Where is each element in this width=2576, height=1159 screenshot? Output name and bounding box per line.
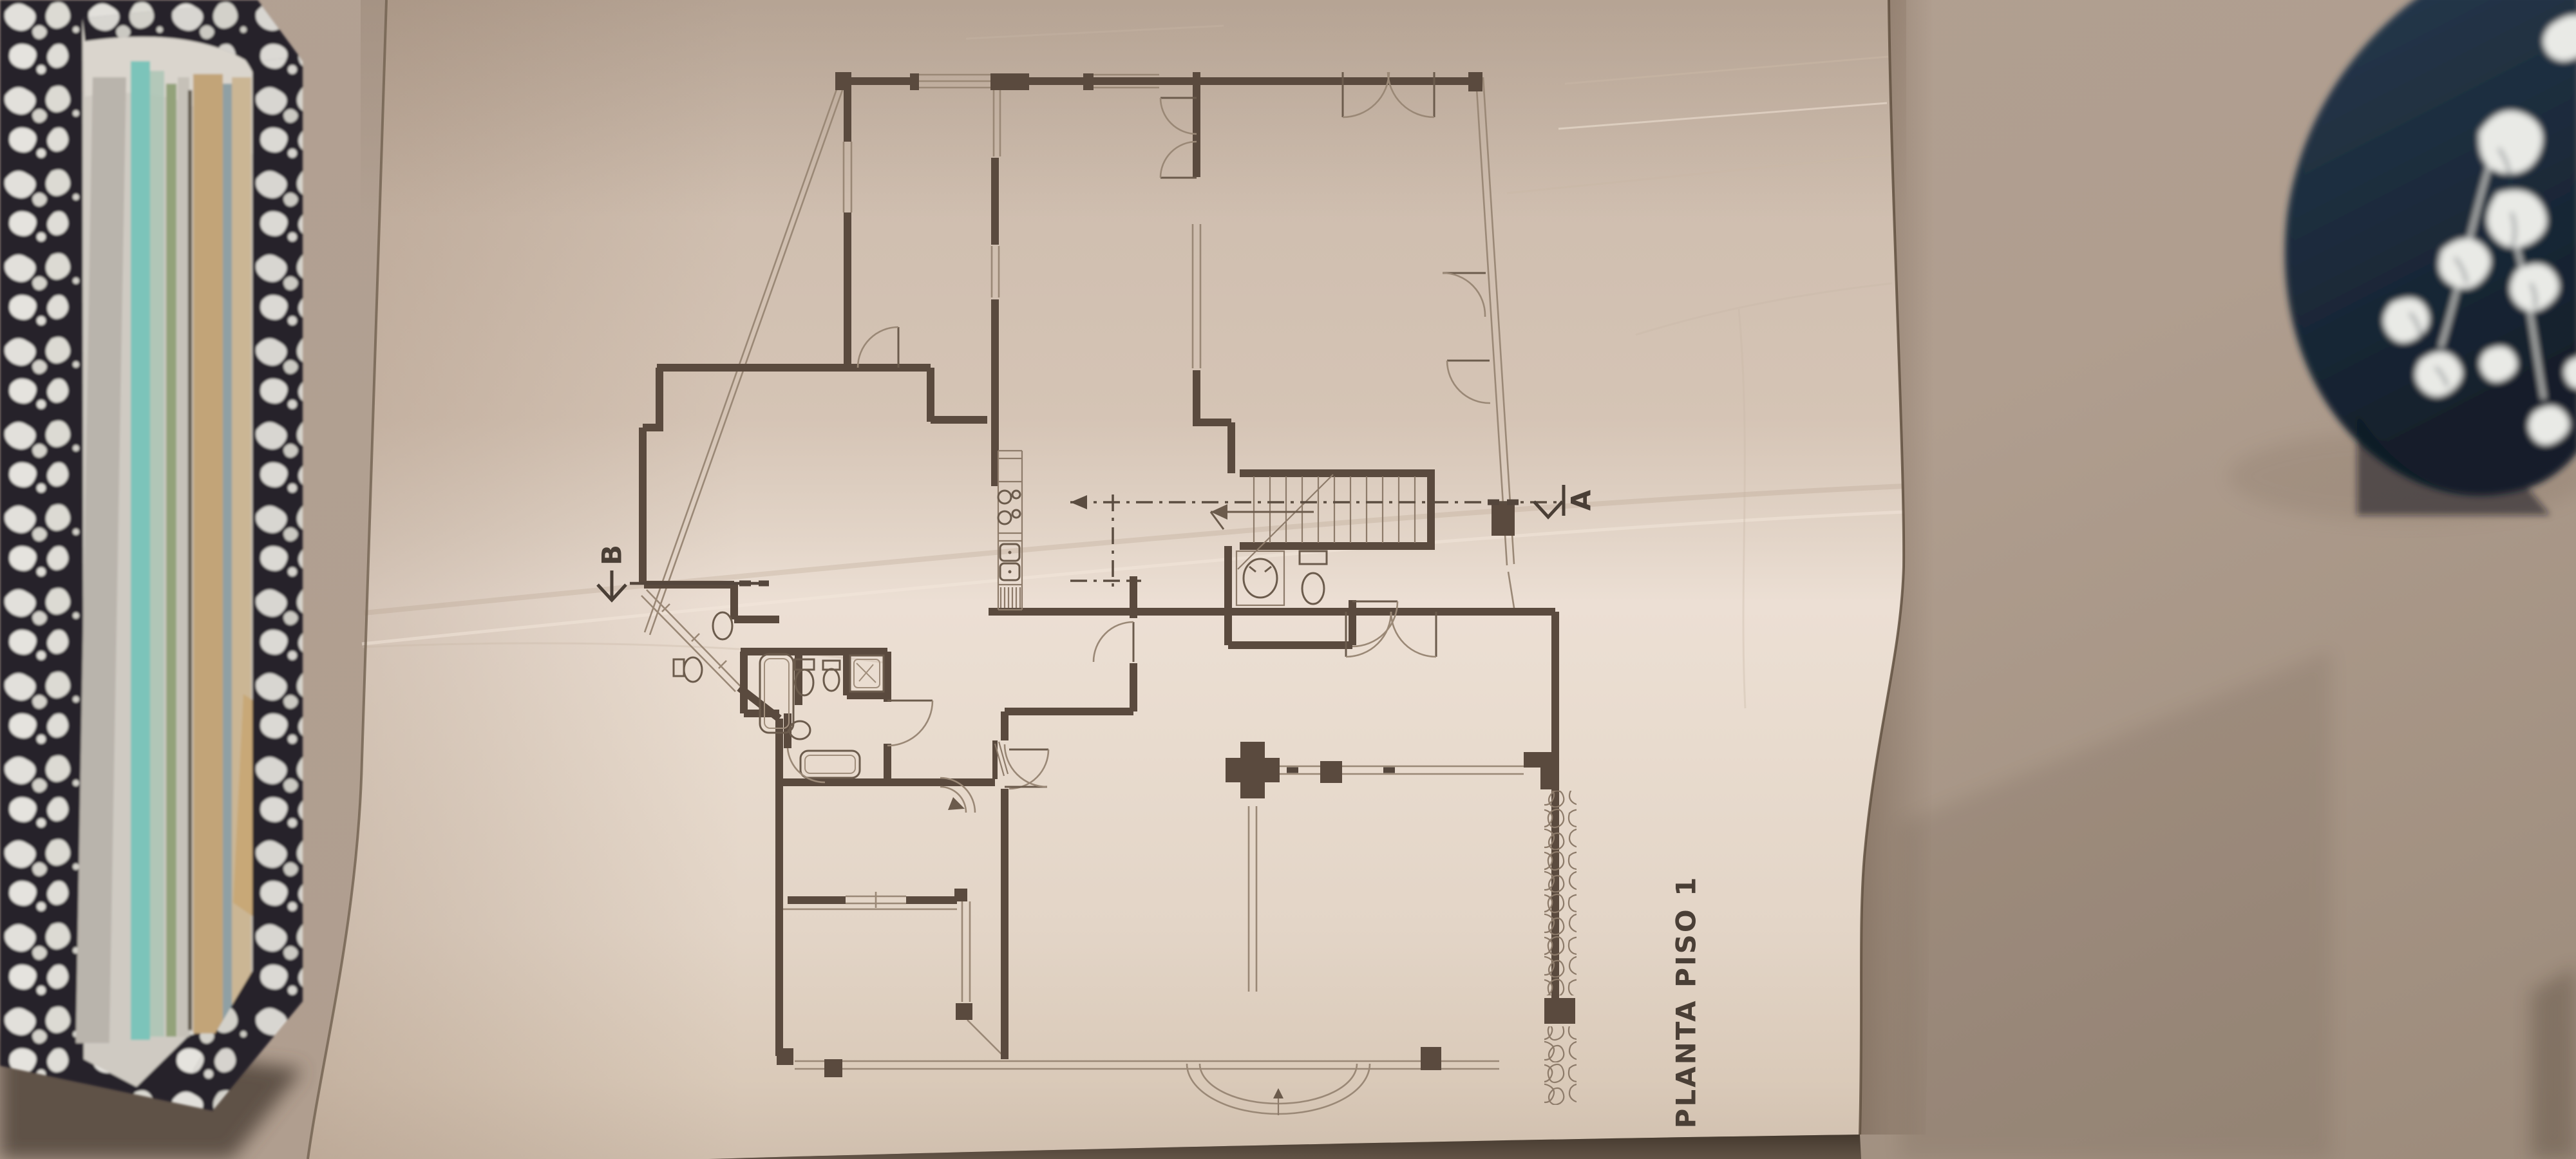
wall-pier — [1492, 502, 1515, 536]
page-edge-tan — [193, 74, 223, 1033]
terrace-pillar — [1320, 761, 1342, 783]
page-edge-teal — [131, 61, 150, 1040]
page-edge-mint — [150, 71, 164, 1037]
page-edge-olive — [166, 84, 176, 1037]
paper-top-shade — [361, 0, 1906, 219]
photo-of-floor-plan: A B PLANTA PISO 1 — [0, 0, 2576, 1159]
page-edge-dark-line — [188, 90, 192, 1030]
plan-title: PLANTA PISO 1 — [1671, 876, 1702, 1129]
page-edge-bluegray — [223, 84, 232, 1024]
section-marker-a: A — [1566, 489, 1597, 511]
corner-shadow — [2531, 966, 2576, 1159]
stacked-notebooks — [0, 0, 303, 1111]
stone-wall — [1544, 791, 1577, 1105]
section-marker-b: B — [596, 545, 628, 565]
page-edge-white — [178, 77, 189, 1037]
